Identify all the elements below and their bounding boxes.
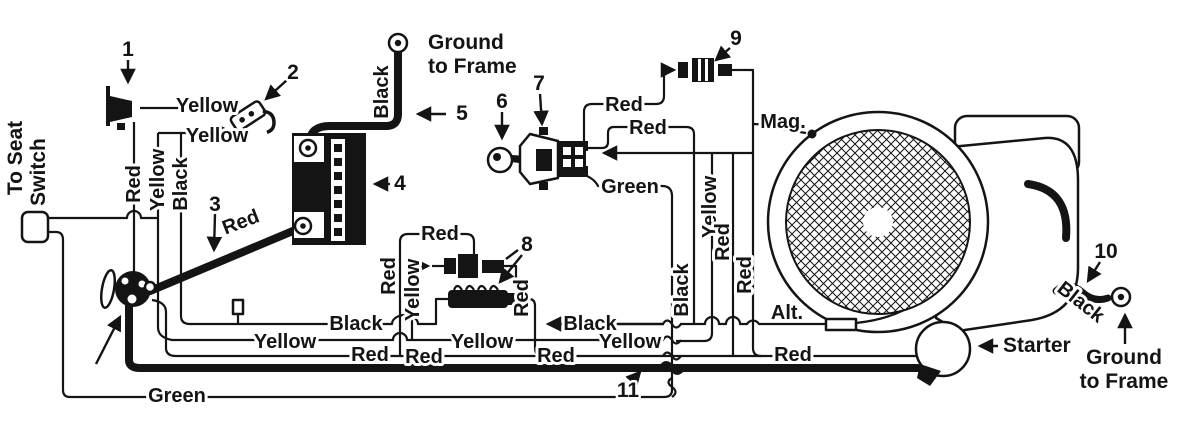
wire-label-red: Red [219,205,262,239]
inline-terminal [233,300,243,314]
callout-2: 2 [287,61,299,84]
wire-label-black: Black [671,262,693,316]
callout-1: 1 [122,38,134,61]
callout9-arrow [716,48,730,60]
ground-to-frame-top-2: to Frame [428,55,517,78]
fuse-body [458,254,478,278]
solenoid-terminal-a [122,278,129,285]
wire-label-red: Red [511,279,533,317]
switch1-body [110,96,132,122]
wire-label-red: Red [605,94,643,116]
wire-label-red: Red [774,344,812,366]
wire-label-red: Red [351,344,389,366]
callout-4: 4 [394,172,406,195]
wire-label-red: Red [537,345,575,367]
magneto-terminal-dot [808,130,817,139]
solenoid-arrow [96,317,120,364]
battery [292,133,366,245]
callout-11: 11 [617,379,640,402]
starter-label: Starter [1003,334,1071,357]
wire-label-yellow: Yellow [451,331,514,353]
to-seat-switch-label-2: Switch [27,138,50,206]
wire-label-yellow: Yellow [402,258,424,321]
wire-label-red: Red [378,257,400,295]
ground-to-frame-right-2: to Frame [1080,370,1169,393]
cable-3-solenoid-battery [150,228,300,291]
switch1-foot [117,123,125,130]
callout-9: 9 [730,27,742,50]
wire-label-yellow: Yellow [147,148,169,211]
callout-3: 3 [209,193,221,216]
ring-terminal-top-hole [395,40,401,46]
wire-label-yellow: Yellow [254,331,317,353]
solenoid-lever [99,269,117,309]
wire-label-black: Black [170,156,192,210]
wire-label-red: Red [629,117,667,139]
wire-label-black: Black [371,64,393,118]
alt-label: Alt. [771,302,803,324]
alternator-tab [826,319,856,330]
fuse-cap-right [482,260,504,273]
wire-label-green: Green [601,176,659,198]
red-drop-engine-b [748,70,761,356]
battery-post-top-hole [305,145,311,151]
ground-to-frame-top-1: Ground [428,31,504,54]
wire-label-yellow: Yellow [176,95,239,117]
ignition-switch [520,127,592,190]
callout-5: 5 [456,102,468,125]
fuse-9 [678,58,748,82]
fuse-block-clips [454,286,498,290]
wire-label-red: Red [421,223,459,245]
callout-6: 6 [496,90,508,113]
callout10-arrow [1088,262,1100,281]
seat-switch-connector [22,212,48,242]
ground-to-frame-right-1: Ground [1086,346,1162,369]
wire-label-red: Red [734,256,756,294]
solenoid-cable-bolt [145,282,155,292]
callout-8: 8 [521,233,533,256]
wire-label-yellow: Yellow [186,125,249,147]
wire-label-red: Red [405,346,443,368]
switch-connector-block [558,141,588,177]
ring-terminal-right-hole [1118,294,1124,300]
callout3-arrow [214,214,215,250]
flywheel-hub [863,207,893,237]
callout-10: 10 [1094,240,1117,263]
to-seat-switch-label-1: To Seat [4,121,27,195]
callout2-arrow [266,80,287,99]
fuse-block-body [448,290,508,308]
wire-label-black: Black [563,313,617,335]
wire-label-red: Red [123,165,145,203]
callout7-arrow [540,94,542,124]
wire-label-black: Black [329,313,383,335]
callout-7: 7 [533,72,545,95]
switch1-plate [106,86,110,126]
seat-switch-wire-top [48,211,158,218]
wire-label-red: Red [712,223,734,261]
mag-label: Mag. [760,111,806,133]
wiring-diagram-canvas: To Seat Switch Ground to Frame Mag. Alt.… [0,0,1200,432]
callout8-tick [506,250,518,259]
wire-label-green: Green [148,385,206,407]
wiring-diagram: To Seat Switch Ground to Frame Mag. Alt.… [0,0,1200,432]
fuse-cap-left [444,258,456,274]
solenoid-terminal-c [128,295,137,304]
battery-post-bottom-hole [300,223,306,229]
